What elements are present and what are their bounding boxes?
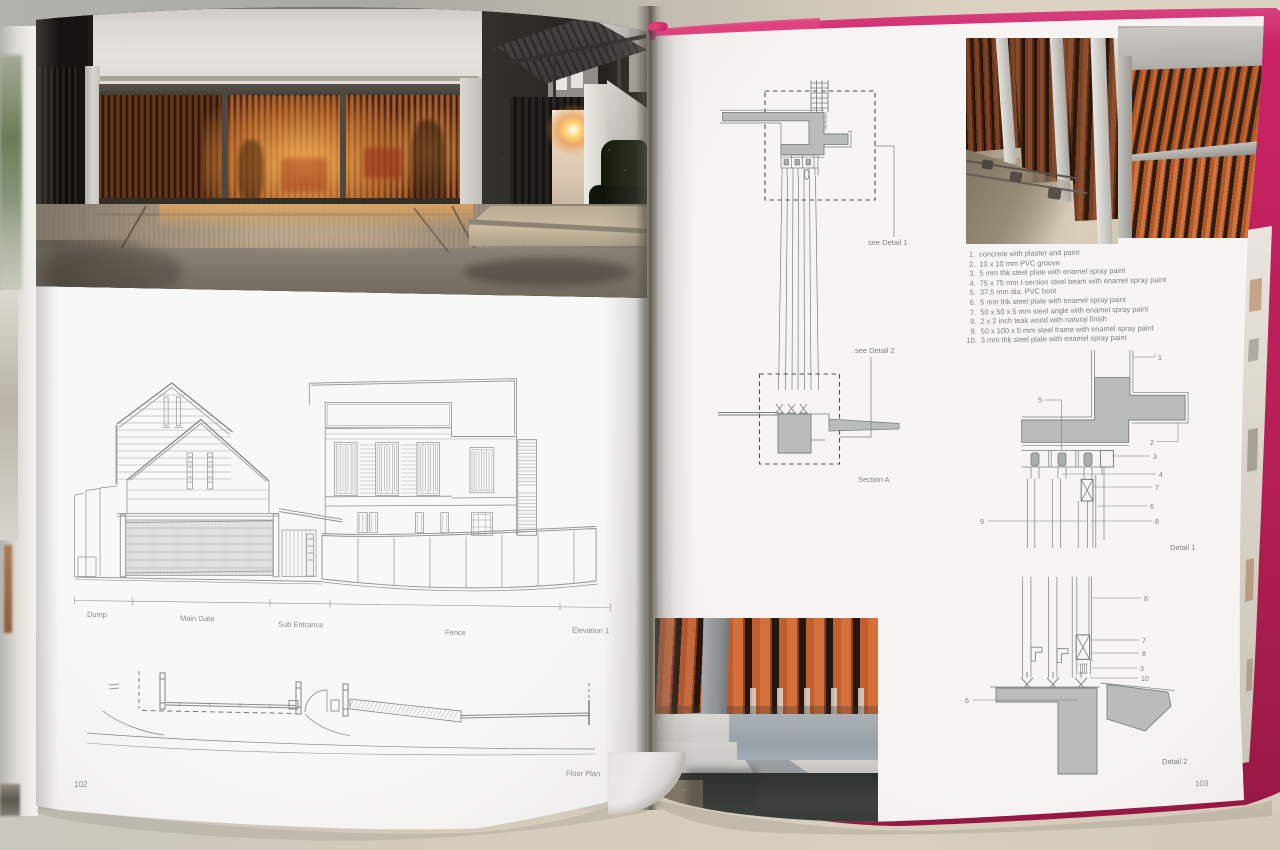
svg-text:6: 6 bbox=[1150, 504, 1154, 511]
svg-text:4: 4 bbox=[1159, 472, 1163, 479]
svg-text:3: 3 bbox=[1153, 454, 1157, 461]
svg-text:1: 1 bbox=[1158, 355, 1162, 362]
svg-text:9: 9 bbox=[980, 519, 984, 526]
svg-text:8: 8 bbox=[1142, 651, 1146, 658]
svg-text:8: 8 bbox=[1155, 519, 1159, 526]
svg-text:10: 10 bbox=[1141, 676, 1149, 683]
svg-text:6: 6 bbox=[965, 698, 969, 705]
svg-text:7: 7 bbox=[1155, 485, 1159, 492]
svg-text:5: 5 bbox=[1038, 398, 1042, 405]
svg-text:3: 3 bbox=[1140, 666, 1144, 673]
svg-text:2: 2 bbox=[1150, 440, 1154, 447]
svg-text:7: 7 bbox=[1142, 638, 1146, 645]
svg-text:8: 8 bbox=[1144, 596, 1148, 603]
